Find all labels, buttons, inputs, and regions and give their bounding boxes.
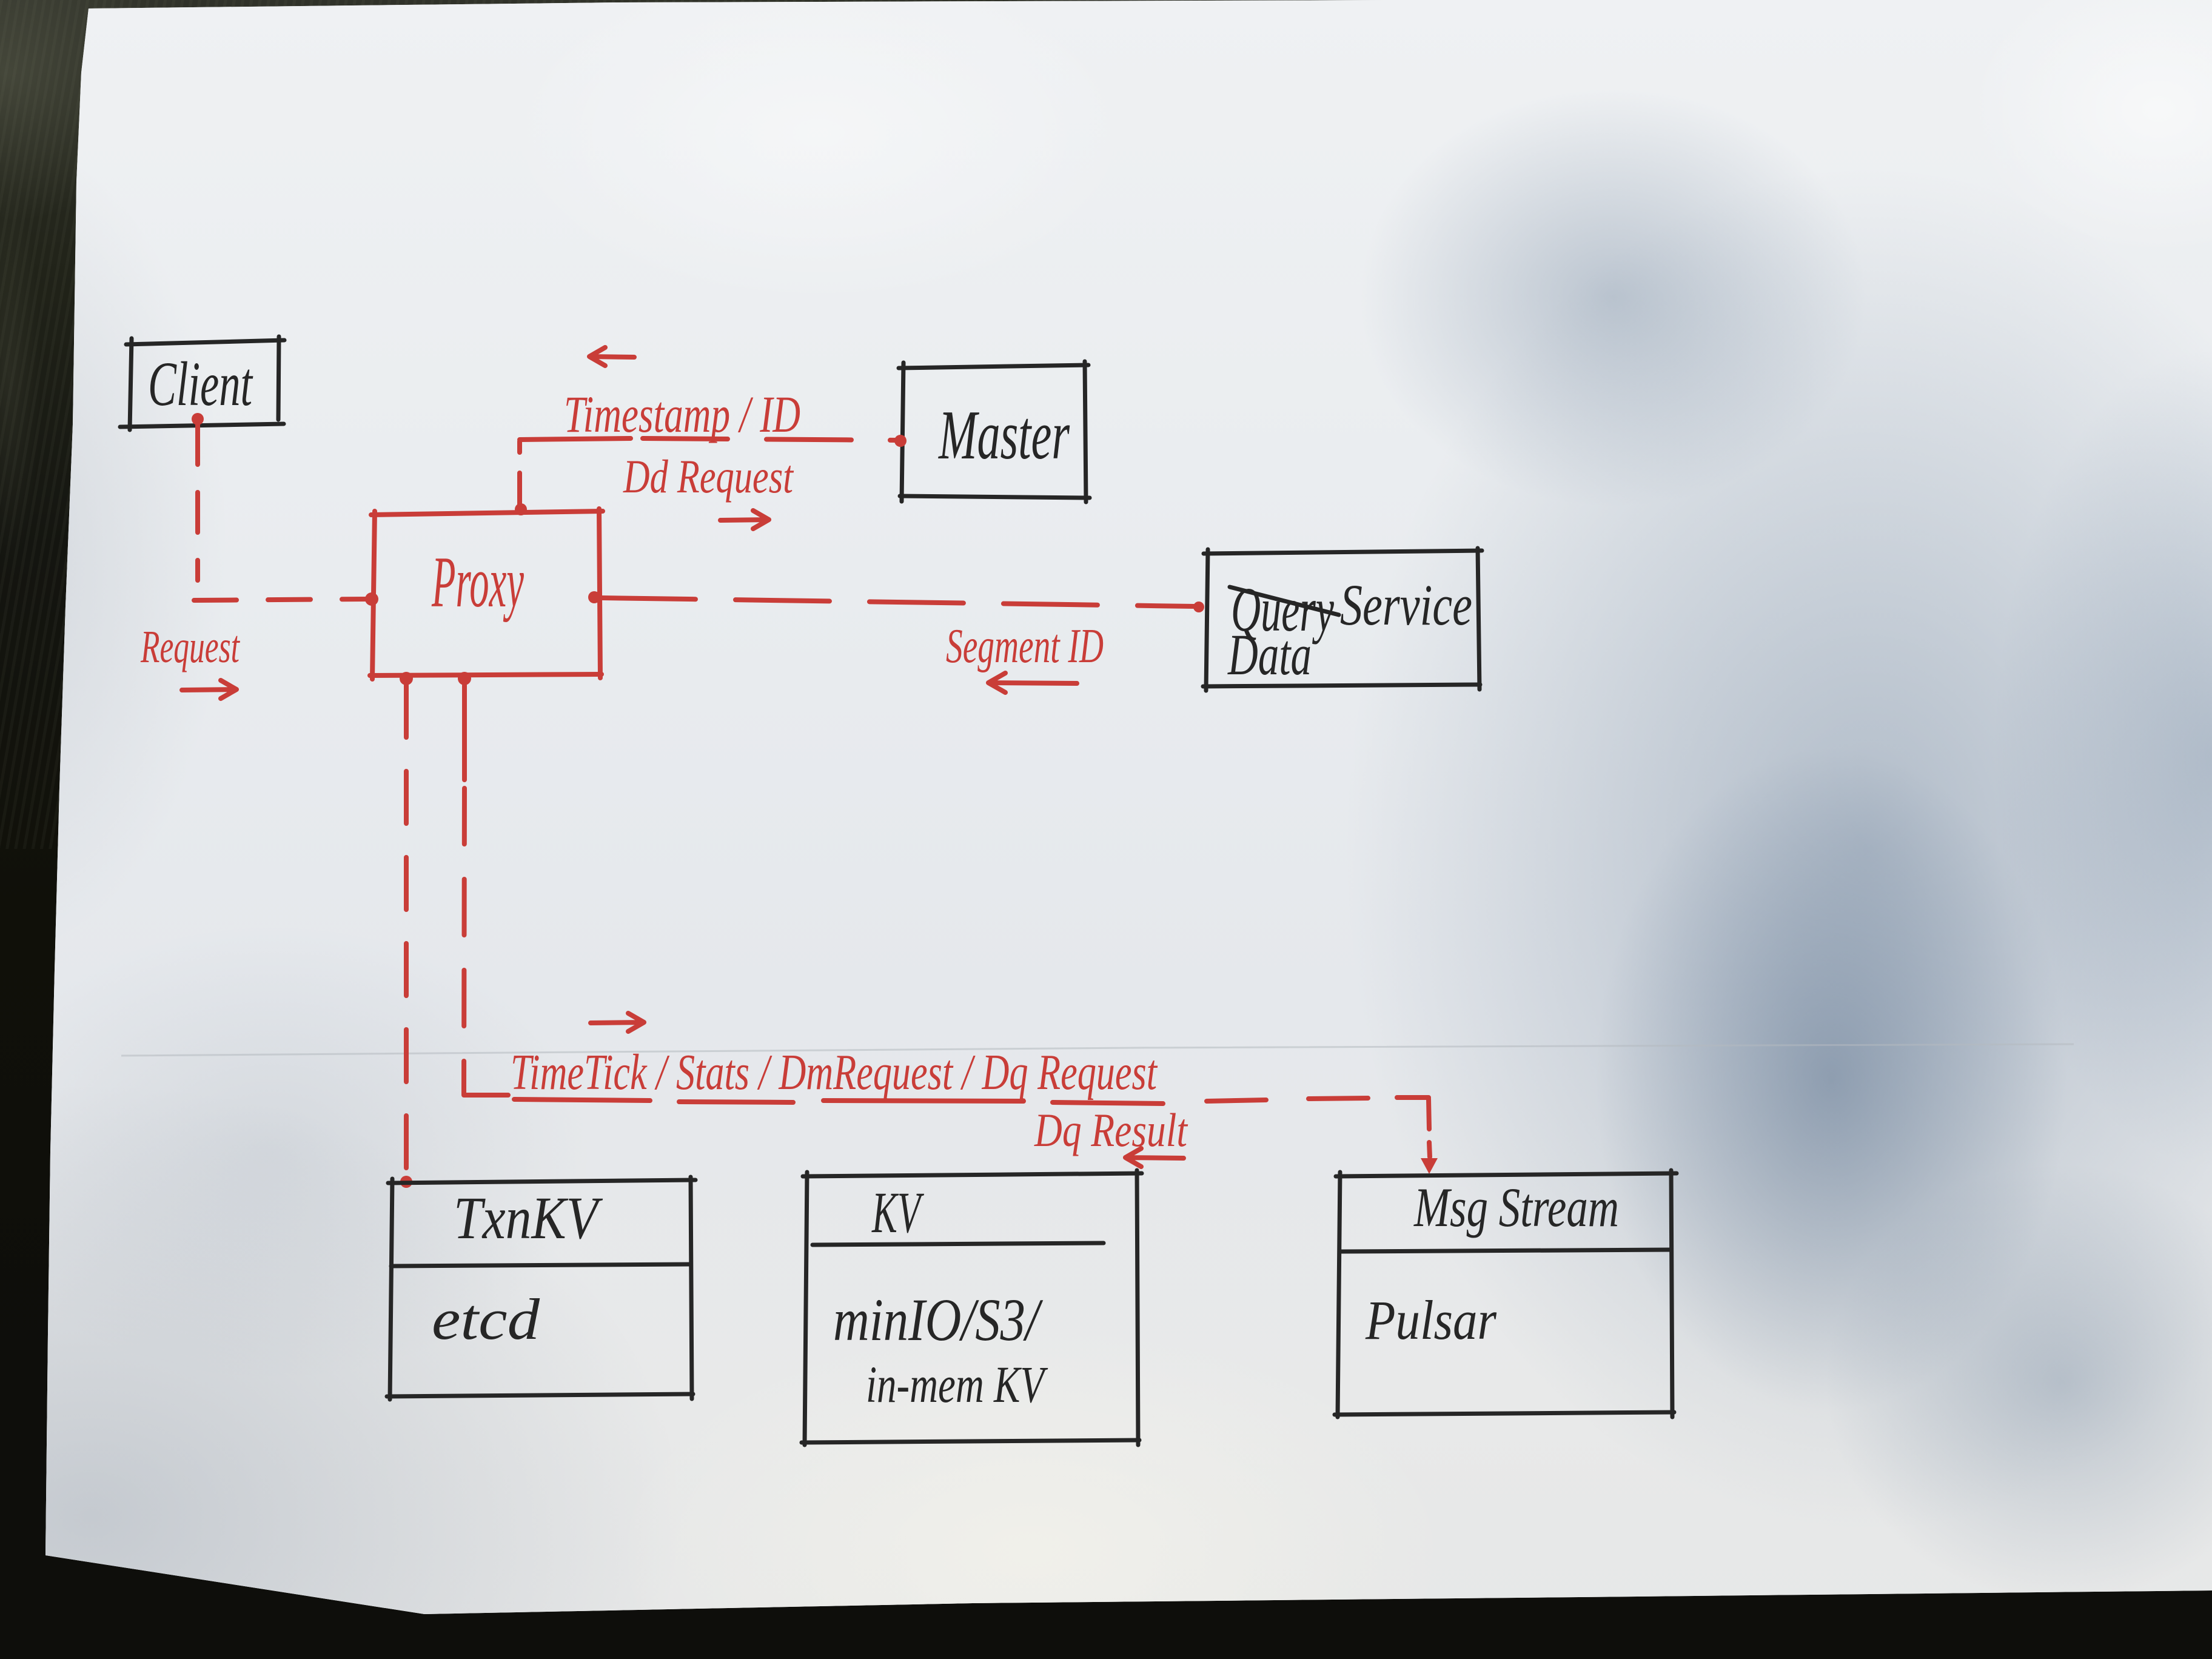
svg-text:minIO/S3/: minIO/S3/	[833, 1286, 1044, 1353]
svg-text:TimeTick / Stats / DmRequest /: TimeTick / Stats / DmRequest / Dq Reques…	[511, 1044, 1158, 1101]
svg-text:Request: Request	[140, 622, 240, 672]
svg-text:Client: Client	[148, 349, 253, 419]
svg-text:Pulsar: Pulsar	[1365, 1289, 1497, 1351]
svg-text:Dd Request: Dd Request	[623, 450, 794, 503]
svg-text:in-mem KV: in-mem KV	[866, 1355, 1048, 1413]
svg-text:Dq Result: Dq Result	[1034, 1104, 1188, 1156]
svg-text:Proxy: Proxy	[431, 541, 524, 622]
svg-text:Segment ID: Segment ID	[946, 620, 1104, 673]
svg-text:Timestamp / ID: Timestamp / ID	[564, 385, 800, 443]
svg-text:Data: Data	[1227, 622, 1312, 687]
svg-text:TxnKV: TxnKV	[454, 1184, 603, 1252]
svg-text:KV: KV	[871, 1180, 924, 1245]
svg-text:Master: Master	[938, 397, 1070, 474]
svg-text:etcd: etcd	[432, 1287, 540, 1352]
svg-text:Service: Service	[1340, 572, 1472, 637]
svg-text:Msg Stream: Msg Stream	[1413, 1176, 1619, 1238]
